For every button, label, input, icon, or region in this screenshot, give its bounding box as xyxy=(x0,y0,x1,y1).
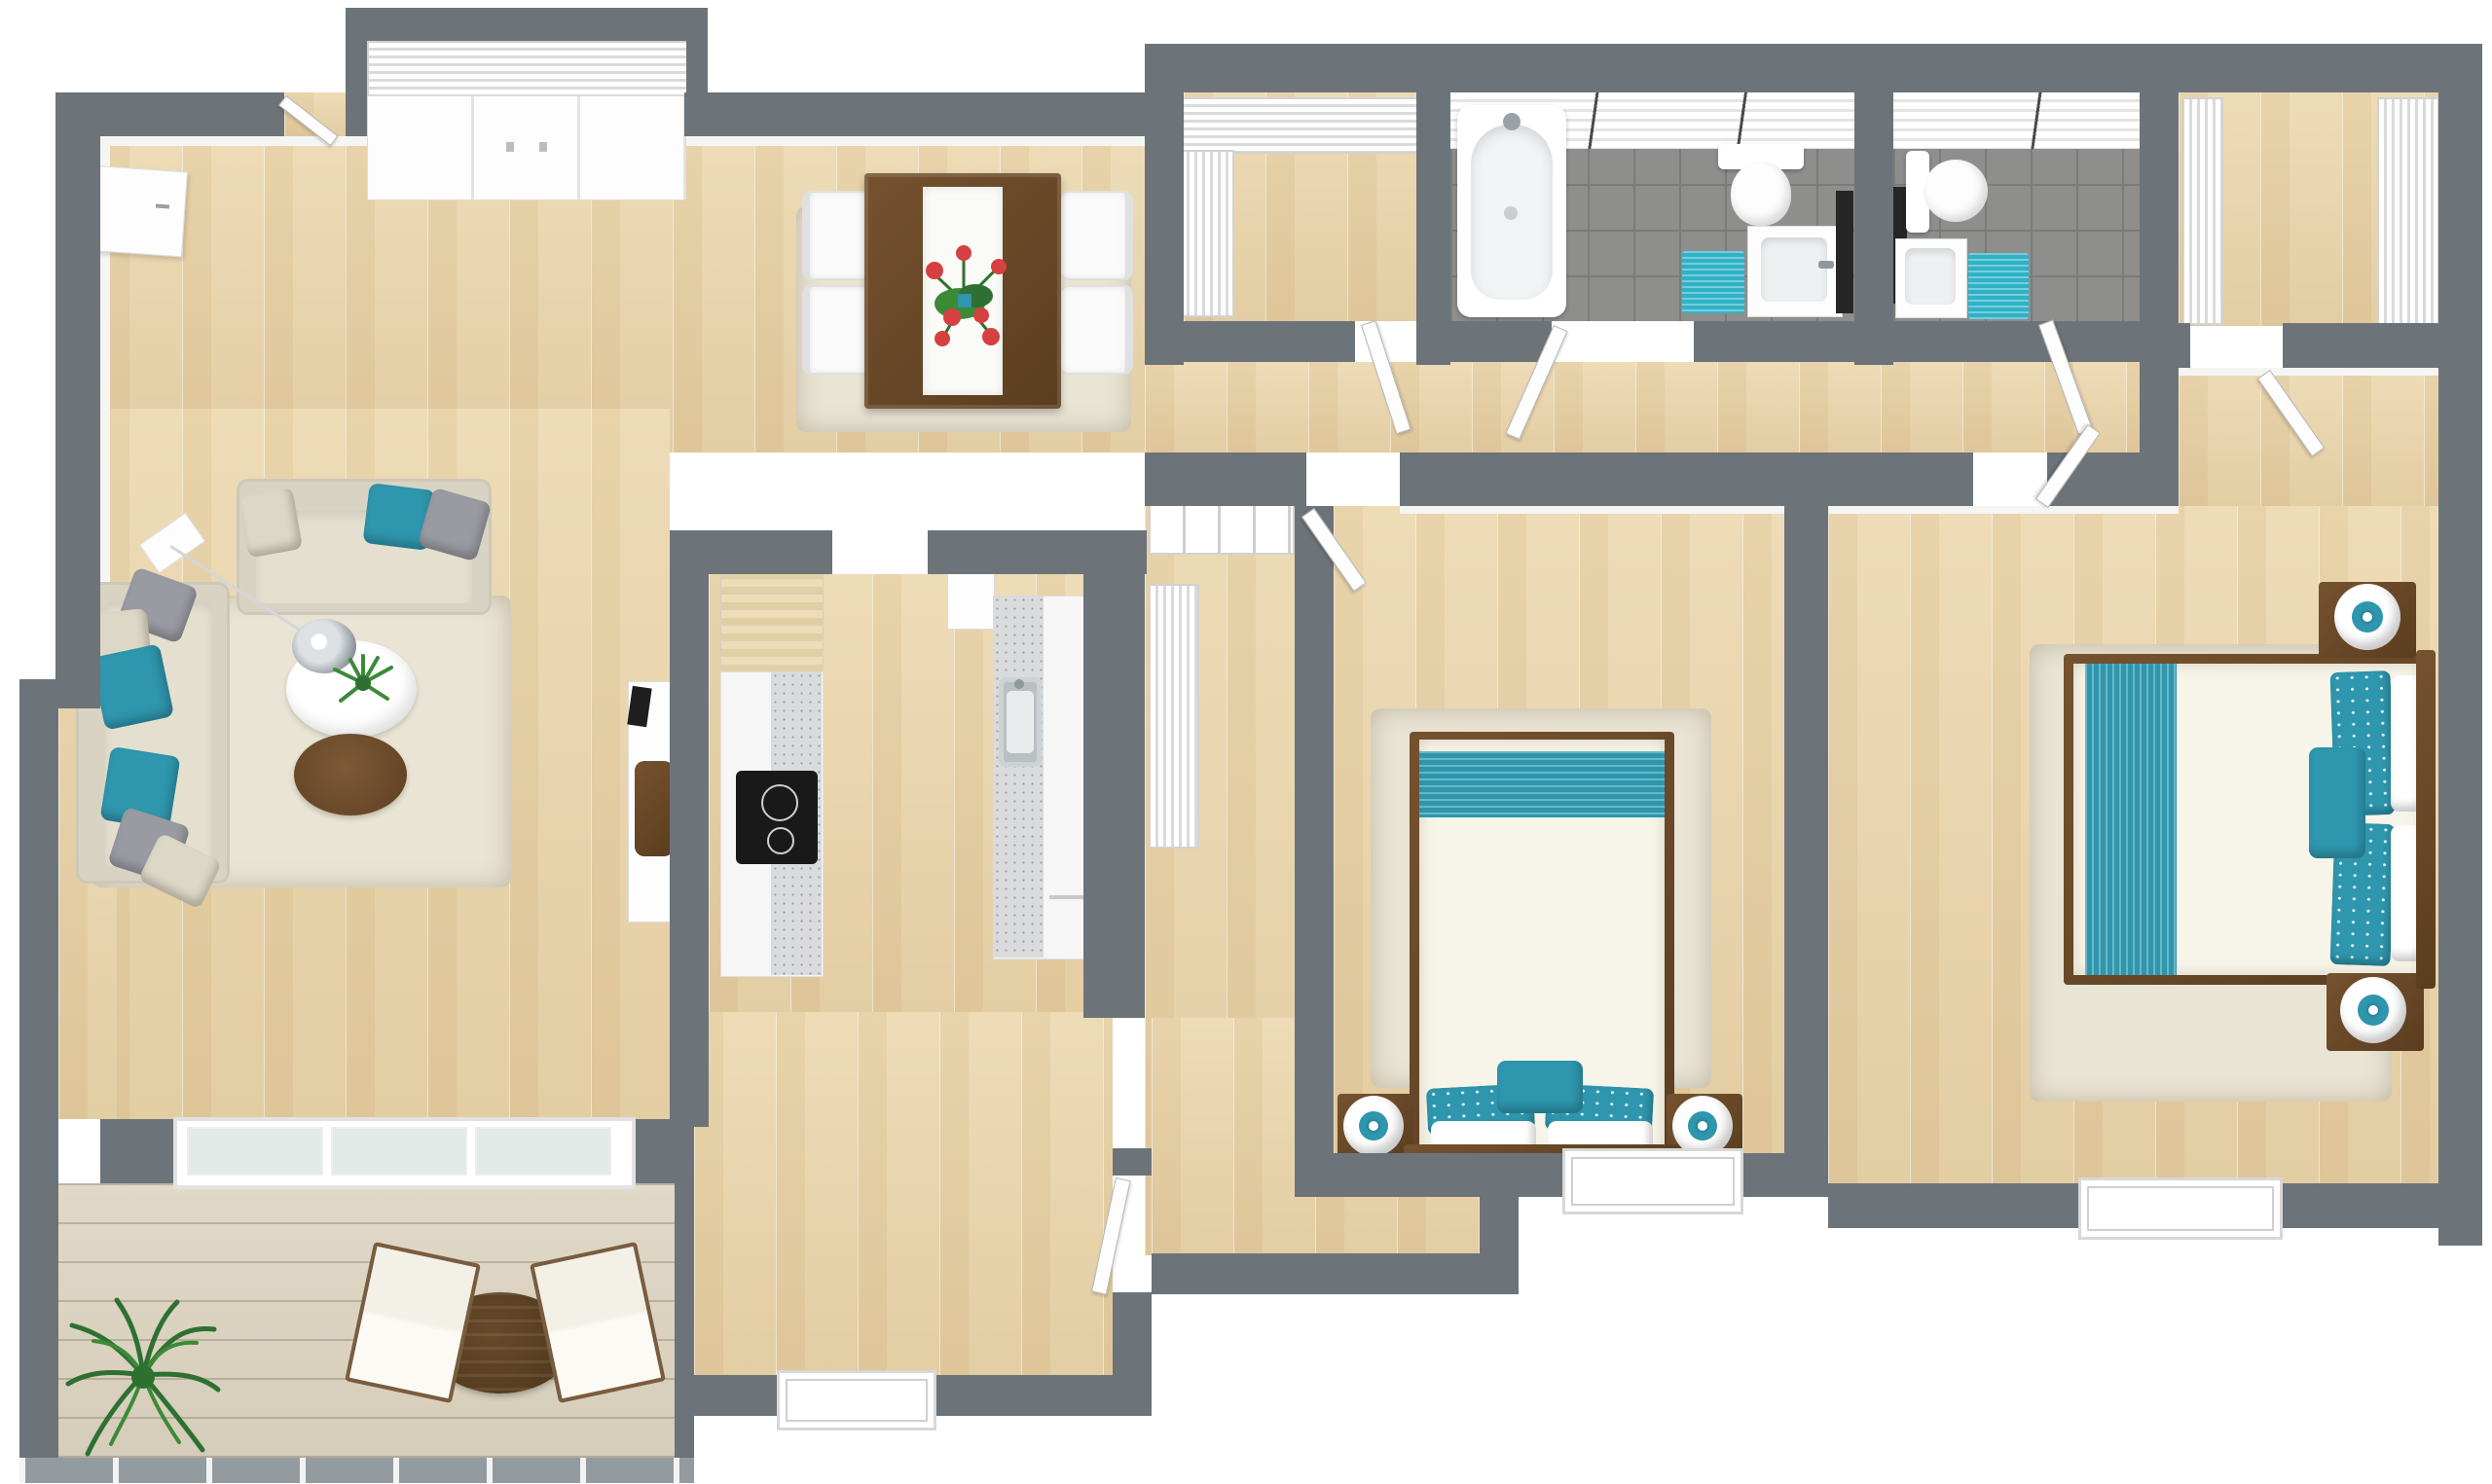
kitchen-countertop-right xyxy=(993,596,1044,958)
storage-closet-top xyxy=(1180,97,1423,154)
bed2-lamp-top-bulb xyxy=(2363,612,2372,622)
wall xyxy=(1145,44,2482,92)
wall xyxy=(1145,452,1306,506)
palm-plant xyxy=(60,1283,226,1467)
storage-closet-left xyxy=(1180,150,1234,317)
wall xyxy=(1334,1153,1570,1197)
sliding-door-glass xyxy=(475,1127,611,1176)
throw-pillow-beige xyxy=(238,488,303,559)
wall xyxy=(346,8,367,136)
wall xyxy=(2283,323,2438,368)
closet-door-handles xyxy=(506,142,547,152)
bathtub-drain xyxy=(1504,206,1518,220)
bedroom2-window xyxy=(2078,1177,2283,1240)
wall xyxy=(684,92,1147,136)
kitchen-tall-cabinet-wood xyxy=(720,562,824,673)
wall xyxy=(1784,452,1828,1197)
wall xyxy=(1400,452,1784,506)
linen-closet-louvered xyxy=(1149,584,1199,849)
wall xyxy=(670,530,832,574)
bath2-tiled-wall xyxy=(1893,92,2140,149)
desk-chair xyxy=(635,761,674,856)
wall-face xyxy=(684,136,1147,146)
wall xyxy=(1113,1292,1152,1416)
vanity-basin xyxy=(1905,248,1956,305)
floor-plan xyxy=(0,0,2492,1484)
wall xyxy=(1419,321,1552,362)
wall-face xyxy=(1828,506,2179,514)
walkin-wardrobe-left xyxy=(2182,97,2223,325)
walkin-wardrobe-right xyxy=(2377,97,2439,325)
wall-face xyxy=(2179,368,2438,376)
bed2-lamp-bottom-bulb xyxy=(2368,1005,2378,1015)
sliding-door-glass xyxy=(331,1127,467,1176)
bed1-lamp-right-bulb xyxy=(1698,1121,1707,1131)
flower-centerpiece xyxy=(913,234,1014,360)
throw-pillow-teal xyxy=(91,643,174,730)
bed1-accent-pillow xyxy=(1497,1061,1583,1113)
wall xyxy=(1828,1183,2082,1228)
sink-faucet xyxy=(1014,679,1024,689)
sink-basin xyxy=(1007,691,1034,753)
vanity-faucet xyxy=(1818,261,1834,269)
wall xyxy=(1694,321,2140,362)
toilet-bowl xyxy=(1924,160,1988,222)
wall xyxy=(19,679,58,1189)
wall-face xyxy=(1400,506,1784,514)
wall xyxy=(1083,530,1145,1018)
wall xyxy=(675,1375,786,1416)
bedroom1-window xyxy=(1562,1148,1743,1214)
wall xyxy=(670,530,709,1127)
bath1-black-cabinet xyxy=(1836,191,1853,313)
wall xyxy=(346,8,708,41)
wall xyxy=(19,1189,58,1458)
bed2-accent-pillow xyxy=(2309,747,2365,858)
coffee-table-wood xyxy=(294,734,407,815)
wall xyxy=(1295,506,1334,1197)
vanity-basin xyxy=(1761,237,1827,302)
bath2-teal-mat xyxy=(1968,253,2029,319)
floor-den xyxy=(694,1012,1113,1377)
wall xyxy=(1145,321,1355,362)
bed2-striped-runner xyxy=(2085,664,2177,975)
sliding-door-glass xyxy=(187,1127,323,1176)
wall xyxy=(2140,92,2179,452)
bed2-headboard xyxy=(2416,650,2436,989)
wall xyxy=(2179,323,2190,368)
cooktop-burner-large xyxy=(761,784,798,821)
table-plant xyxy=(327,650,399,716)
floor-hallway xyxy=(1145,362,2179,452)
bed1-striped-runner xyxy=(1419,751,1665,817)
wall xyxy=(55,92,100,696)
wall xyxy=(100,1119,173,1183)
wall xyxy=(1113,1148,1152,1176)
entry-closet-louver-doors xyxy=(367,41,688,99)
dining-chair xyxy=(1059,191,1133,280)
cooktop-burner-small xyxy=(767,827,794,854)
bath1-teal-mat xyxy=(1682,251,1744,313)
wall xyxy=(1152,1253,1519,1294)
bed1-lamp-left-bulb xyxy=(1369,1121,1378,1131)
bathtub-faucet xyxy=(1503,113,1521,130)
wall xyxy=(2438,92,2482,1246)
den-window xyxy=(777,1370,936,1430)
toilet-bowl xyxy=(1731,162,1791,226)
wall xyxy=(2273,1183,2438,1228)
dishwasher-handle xyxy=(1049,895,1084,899)
dining-chair xyxy=(1059,285,1133,375)
balcony-railing xyxy=(19,1458,694,1483)
